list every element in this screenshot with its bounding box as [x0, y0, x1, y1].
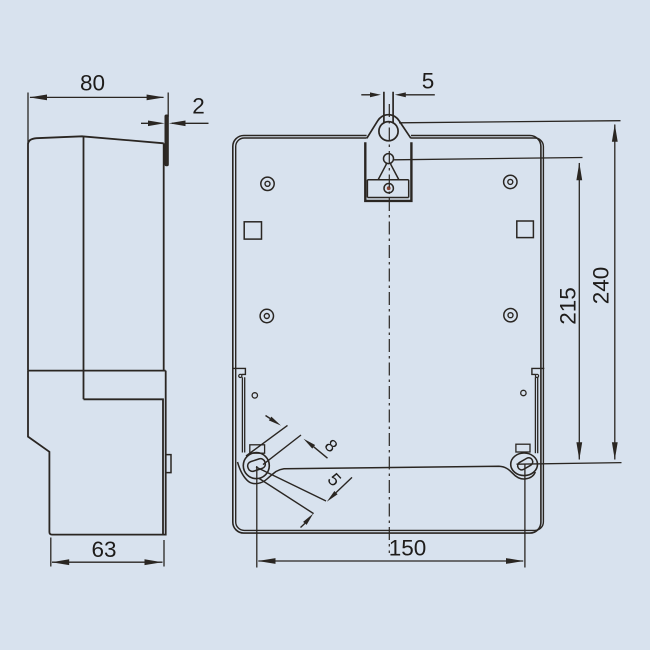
- svg-text:80: 80: [80, 71, 105, 96]
- svg-text:5: 5: [422, 69, 435, 94]
- svg-text:150: 150: [389, 536, 427, 561]
- svg-text:240: 240: [588, 267, 613, 305]
- svg-text:215: 215: [556, 287, 581, 325]
- svg-text:2: 2: [192, 94, 205, 119]
- svg-text:63: 63: [91, 537, 116, 562]
